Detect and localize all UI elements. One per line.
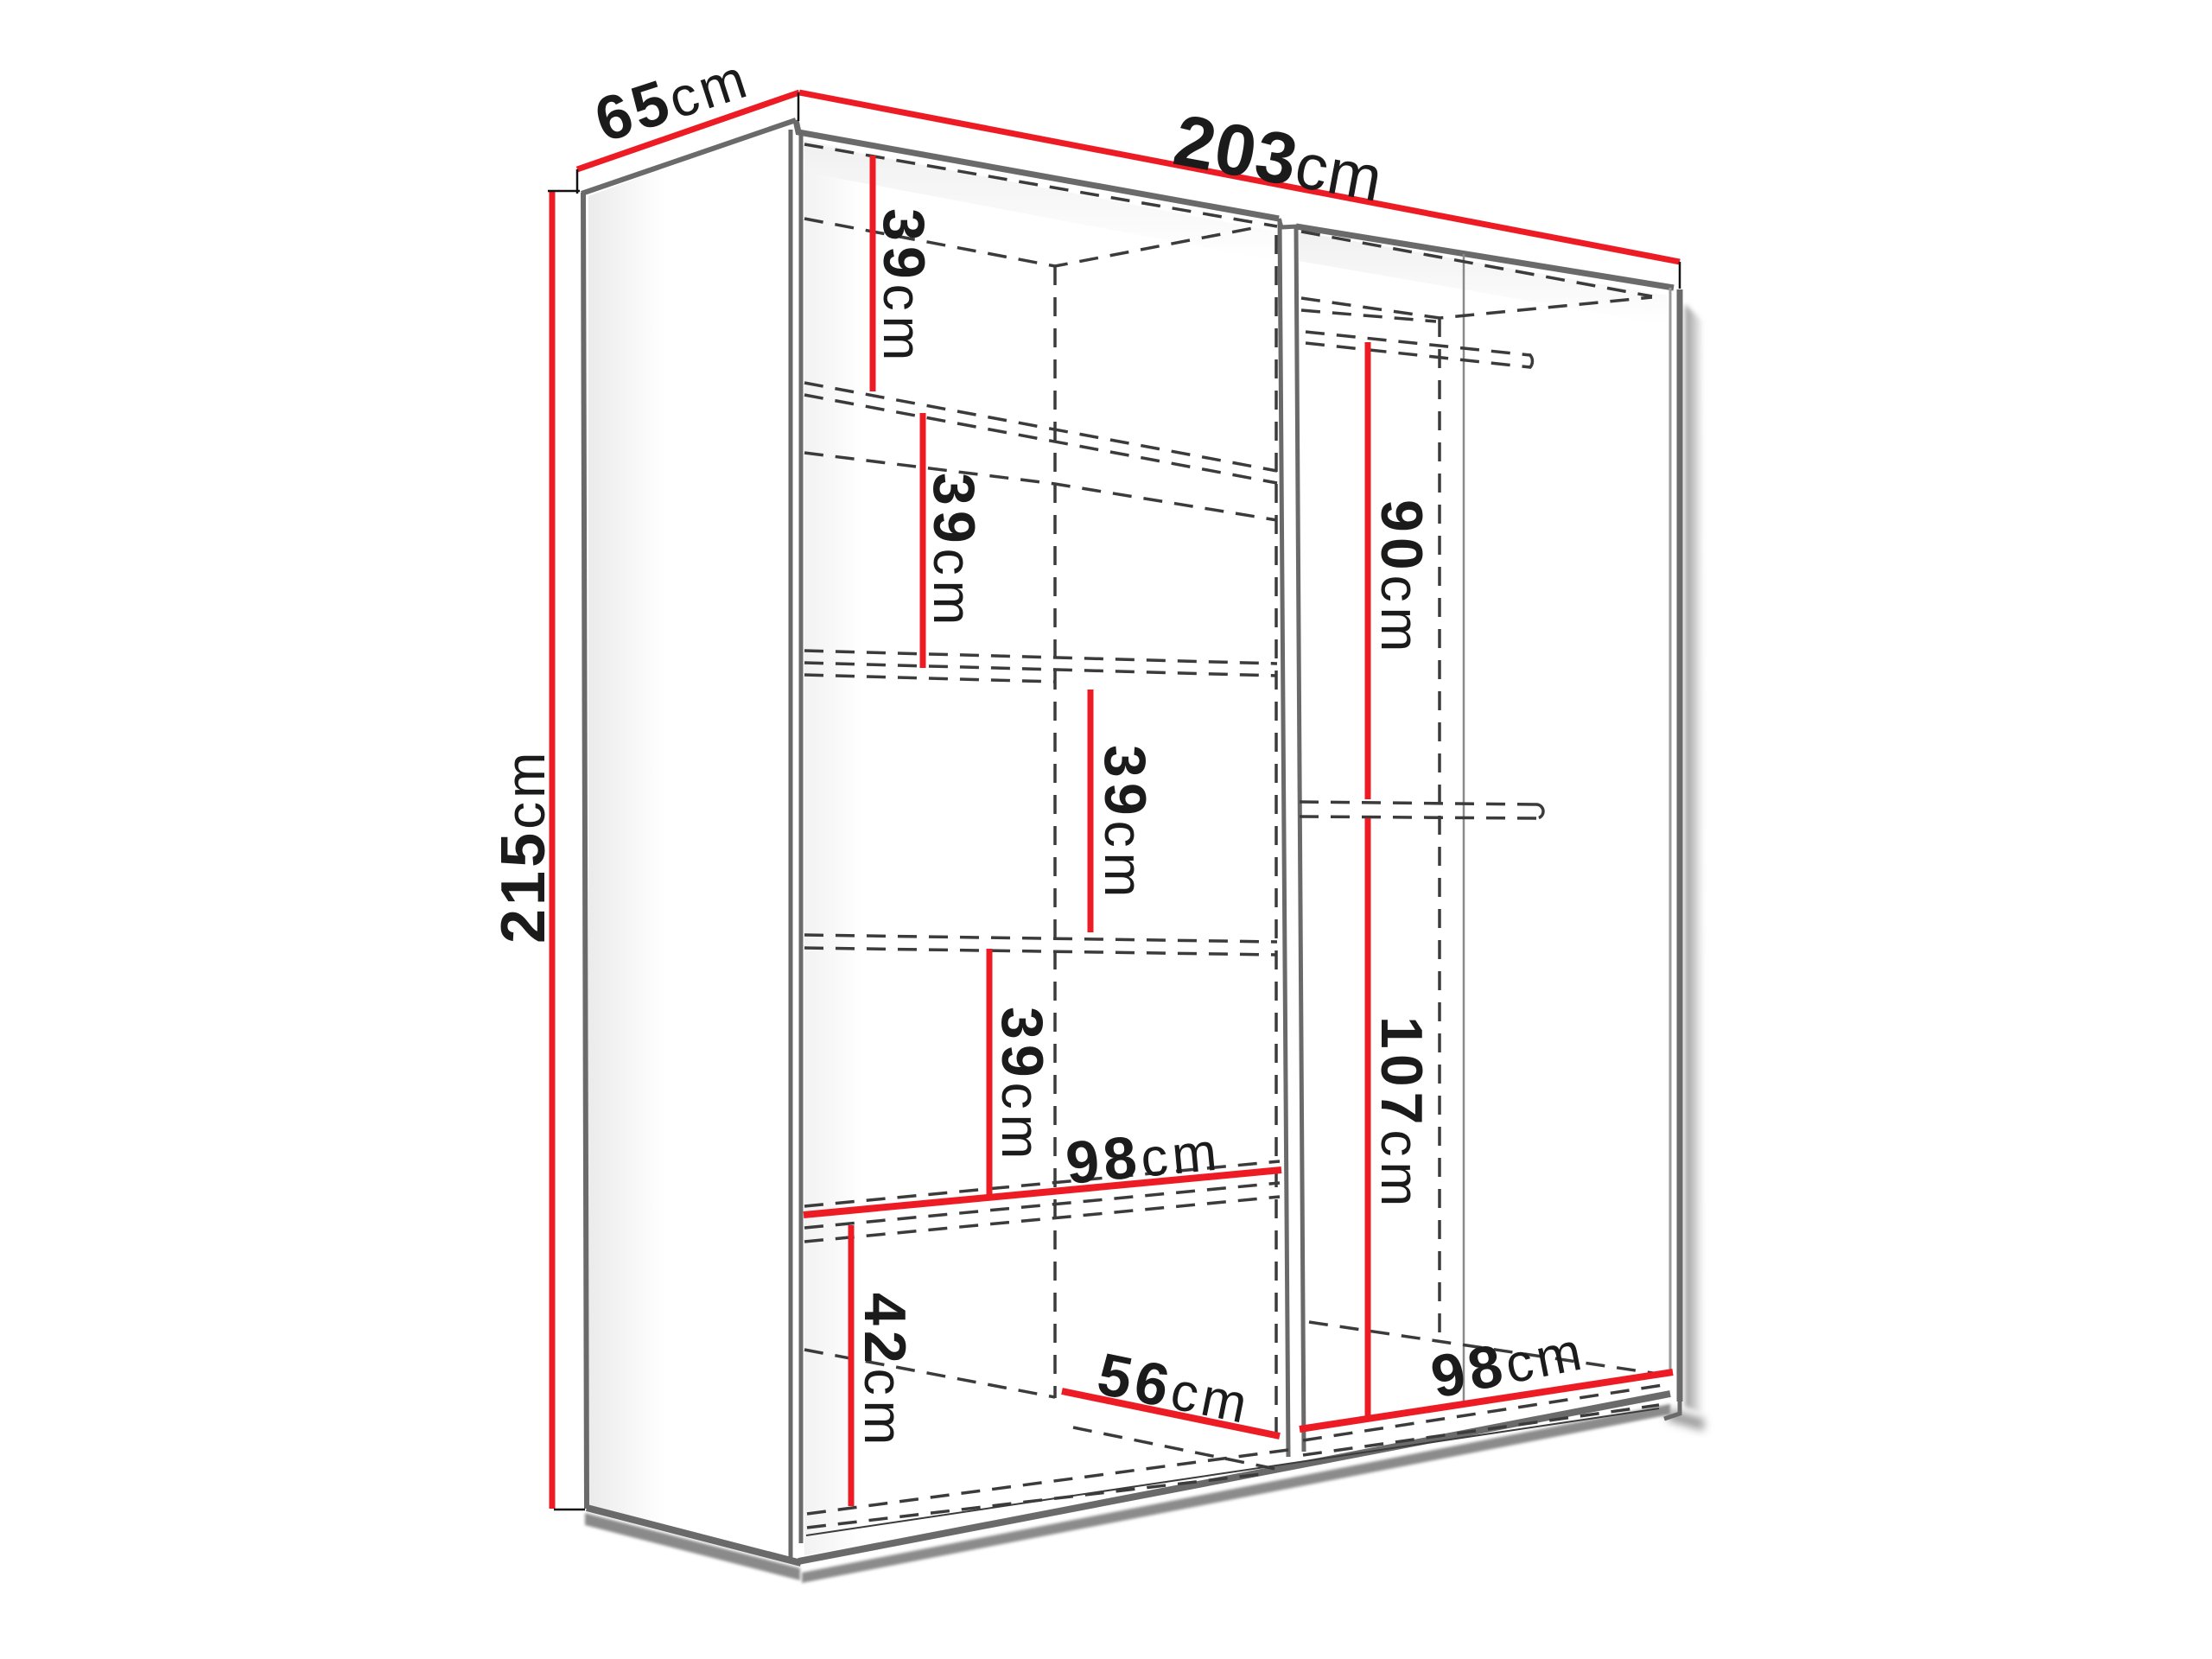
svg-text:39cm: 39cm (921, 473, 987, 630)
svg-text:39cm: 39cm (871, 208, 937, 365)
svg-text:90cm: 90cm (1369, 499, 1434, 657)
svg-text:39cm: 39cm (989, 1007, 1055, 1164)
svg-text:215cm: 215cm (489, 749, 558, 944)
svg-text:107cm: 107cm (1369, 1016, 1434, 1211)
svg-text:39cm: 39cm (1092, 745, 1158, 902)
svg-text:42cm: 42cm (852, 1293, 918, 1450)
